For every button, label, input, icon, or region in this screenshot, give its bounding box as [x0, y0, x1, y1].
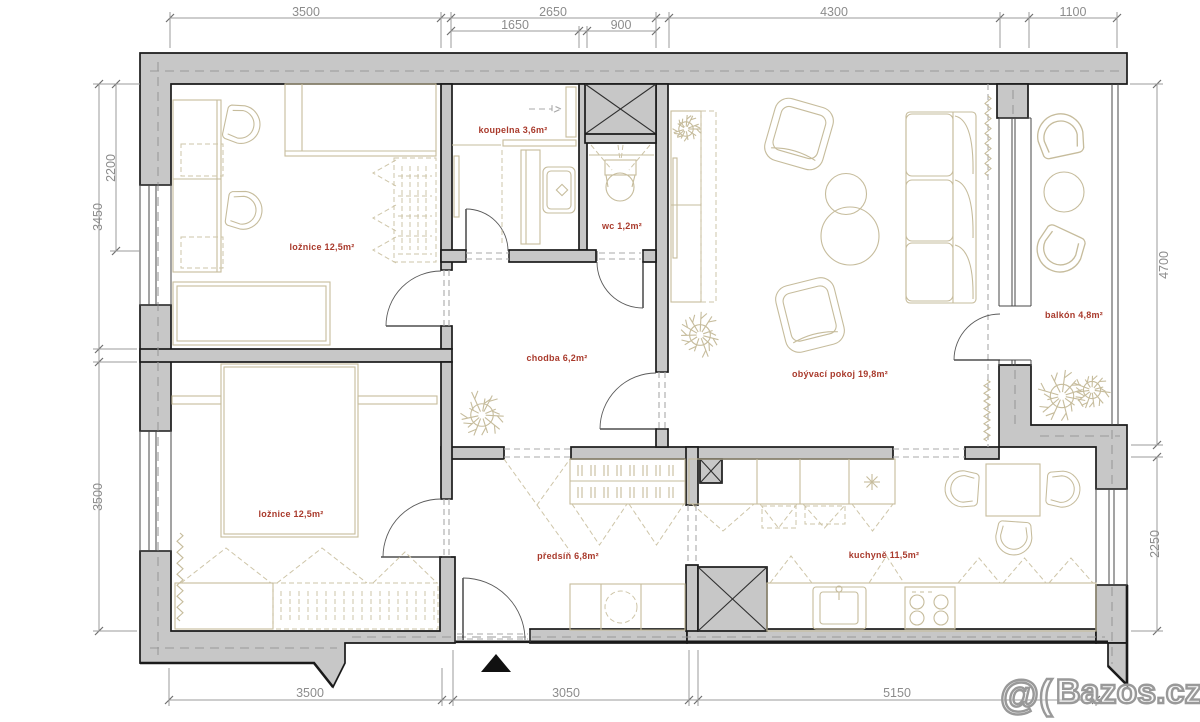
svg-text:4700: 4700	[1157, 251, 1171, 279]
svg-text:balkón 4,8m²: balkón 4,8m²	[1045, 310, 1103, 320]
svg-text:obývací pokoj 19,8m²: obývací pokoj 19,8m²	[792, 369, 888, 379]
svg-text:Bazos.cz: Bazos.cz	[1056, 673, 1200, 711]
svg-text:3450: 3450	[91, 203, 105, 231]
svg-text:900: 900	[611, 18, 632, 32]
svg-text:3500: 3500	[296, 686, 324, 700]
svg-text:ložnice 12,5m²: ložnice 12,5m²	[289, 242, 354, 252]
svg-text:@(: @(	[1000, 673, 1053, 717]
svg-text:2200: 2200	[104, 154, 118, 182]
svg-text:kuchyně 11,5m²: kuchyně 11,5m²	[849, 550, 920, 560]
svg-text:chodba 6,2m²: chodba 6,2m²	[526, 353, 587, 363]
svg-text:1100: 1100	[1060, 5, 1087, 19]
svg-text:4300: 4300	[820, 5, 848, 19]
svg-text:1650: 1650	[501, 18, 529, 32]
svg-text:3500: 3500	[292, 5, 320, 19]
svg-text:wc 1,2m²: wc 1,2m²	[601, 221, 642, 231]
svg-text:2250: 2250	[1148, 530, 1162, 558]
svg-text:3050: 3050	[552, 686, 580, 700]
svg-text:2650: 2650	[539, 5, 567, 19]
svg-text:5150: 5150	[883, 686, 911, 700]
svg-text:3500: 3500	[91, 483, 105, 511]
svg-text:ložnice 12,5m²: ložnice 12,5m²	[258, 509, 323, 519]
svg-text:koupelna 3,6m²: koupelna 3,6m²	[478, 125, 547, 135]
svg-text:předsíň 6,8m²: předsíň 6,8m²	[537, 551, 599, 561]
